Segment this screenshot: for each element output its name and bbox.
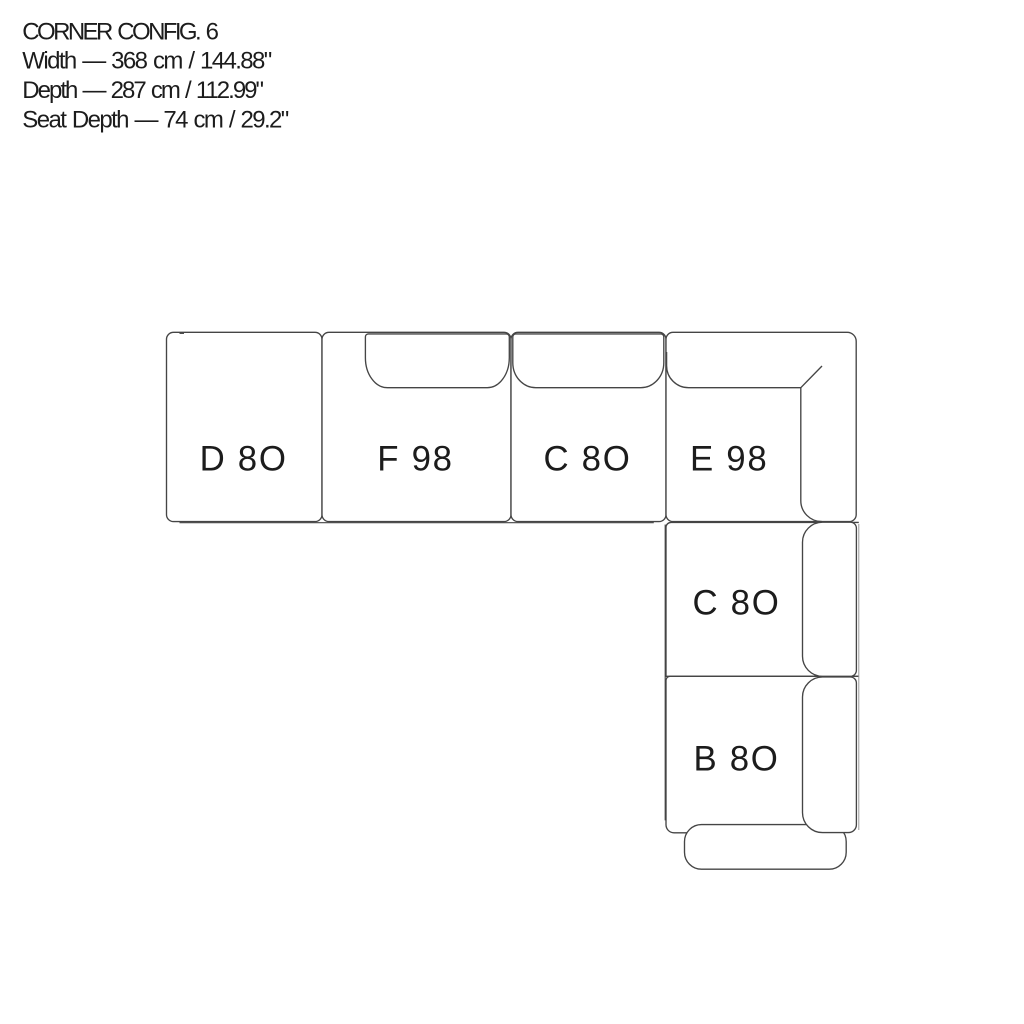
svg-text:Width — 368 cm / 144.88": Width — 368 cm / 144.88" bbox=[22, 48, 271, 75]
svg-text:E 98: E 98 bbox=[690, 440, 768, 479]
svg-text:D 8O: D 8O bbox=[200, 440, 288, 479]
svg-text:C 8O: C 8O bbox=[543, 440, 631, 479]
svg-text:Depth — 287 cm / 112.99": Depth — 287 cm / 112.99" bbox=[22, 77, 263, 104]
svg-text:Seat Depth — 74 cm / 29.2": Seat Depth — 74 cm / 29.2" bbox=[22, 106, 288, 133]
svg-text:C 8O: C 8O bbox=[692, 584, 780, 623]
svg-text:B 8O: B 8O bbox=[693, 740, 779, 779]
svg-text:CORNER CONFIG. 6: CORNER CONFIG. 6 bbox=[22, 18, 218, 45]
svg-text:F 98: F 98 bbox=[377, 440, 453, 479]
